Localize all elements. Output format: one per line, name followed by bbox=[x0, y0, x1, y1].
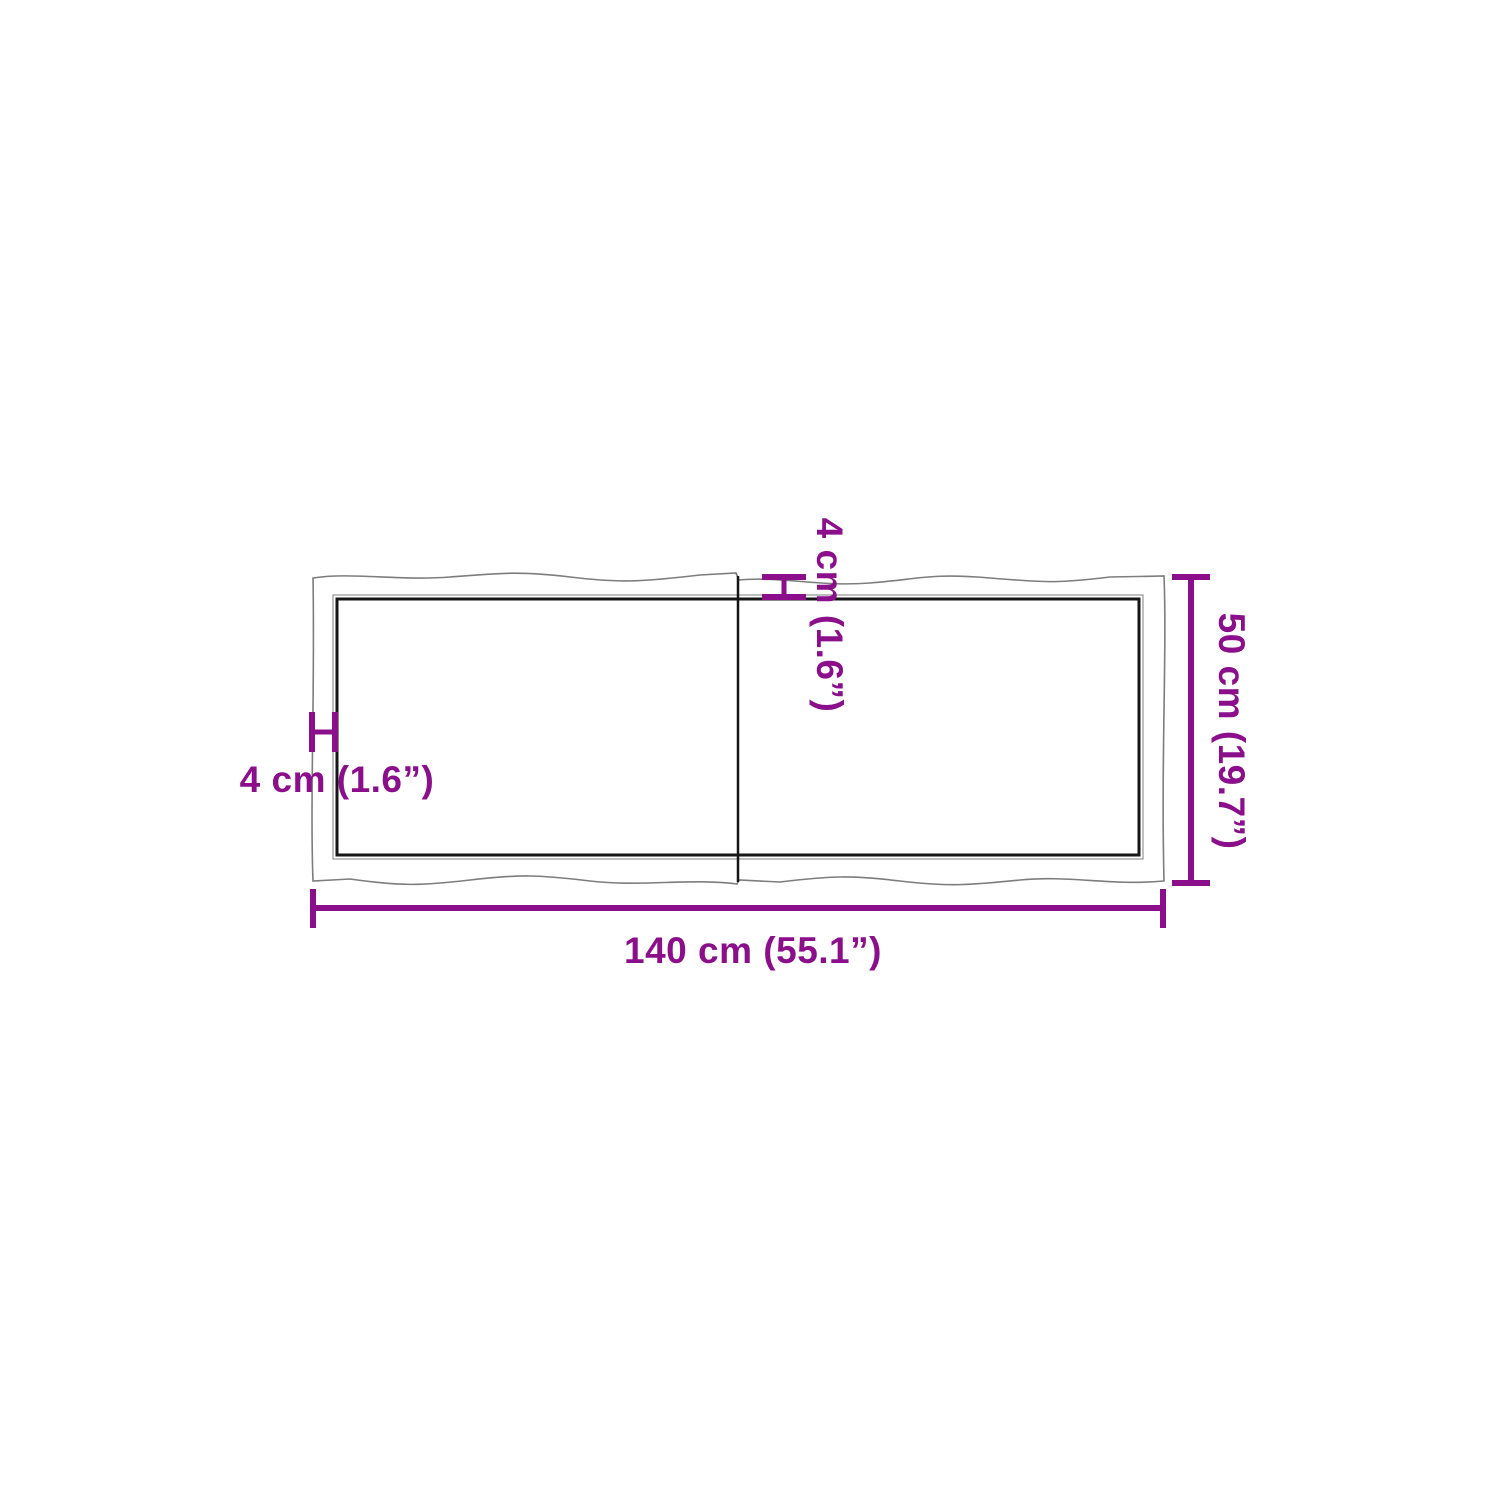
thickness-left-label: 4 cm (1.6”) bbox=[240, 759, 435, 800]
dimension-diagram-page: 140 cm (55.1”) 50 cm (19.7”) 4 cm (1.6”)… bbox=[0, 0, 1500, 1500]
width-dimension-label: 140 cm (55.1”) bbox=[624, 930, 882, 971]
height-dimension-label: 50 cm (19.7”) bbox=[1211, 613, 1252, 850]
dimension-lines-group bbox=[309, 574, 1210, 928]
thickness-top-label: 4 cm (1.6”) bbox=[809, 518, 850, 713]
board-lines-group bbox=[333, 576, 1143, 882]
tabletop-dimension-diagram: 140 cm (55.1”) 50 cm (19.7”) 4 cm (1.6”)… bbox=[0, 0, 1500, 1500]
